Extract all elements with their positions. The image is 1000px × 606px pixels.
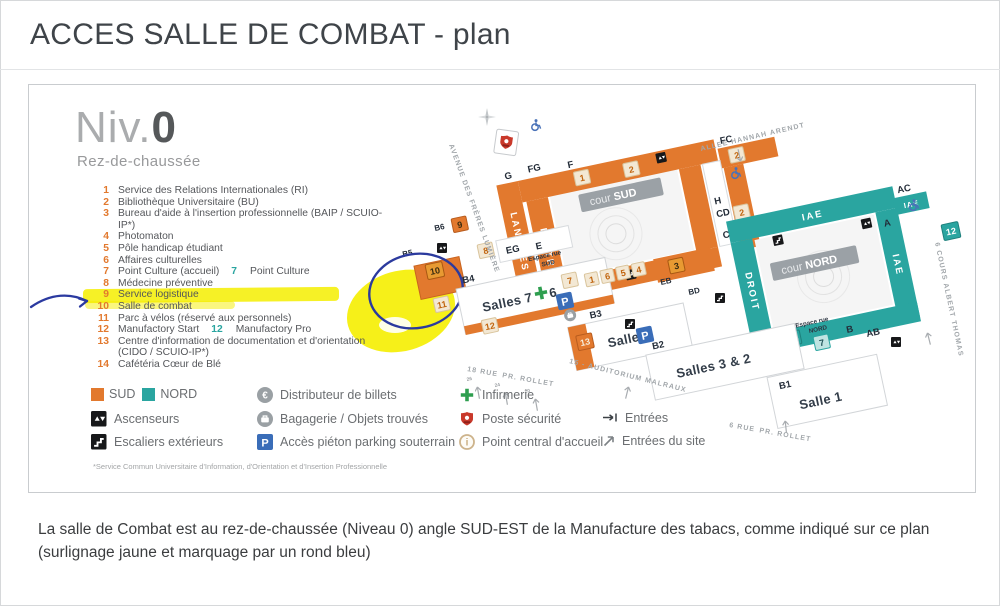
nord-label: NORD [160,387,197,401]
compass-icon [478,108,496,126]
site-entrance-arrow-icon [603,435,615,447]
legend-label: Escaliers extérieurs [114,435,223,449]
legend-ascenseurs: Ascenseurs [91,411,179,427]
parking-icon [257,434,273,450]
parking-icon [636,326,655,345]
directory-row: 5Pôle handicap étudiant [91,243,391,255]
stairs-icon [91,434,107,450]
elevator-icon [91,411,107,427]
parking-icon [556,292,575,311]
zone-bd: BD [688,286,701,297]
legend-label: Accès piéton parking souterrain [280,435,455,449]
directory-row: 9Service logistique [91,289,391,301]
directory-row-salle-de-combat: 10Salle de combat [91,301,391,313]
zone-ac: AC [896,183,912,197]
legend-entrees-site: Entrées du site [603,434,705,448]
legend-label: Bagagerie / Objets trouvés [280,412,428,426]
legend-label: Infirmerie [482,388,534,402]
directory-row: 12Manufactory Start12Manufactory Pro [91,324,391,336]
legend-label: Point central d'accueil [482,435,603,449]
legend-distributeur: Distributeur de billets [257,387,397,403]
legend-label: Distributeur de billets [280,388,397,402]
infirmary-cross-icon [459,387,475,403]
caption-text: La salle de Combat est au rez-de-chaussé… [38,518,978,565]
blue-pen-arrow [28,285,105,321]
page-title: ACCES SALLE DE COMBAT - plan [30,18,511,52]
entry-arrow [925,332,934,345]
legend-sud-nord: SUD NORD [91,387,197,401]
directory-row: 4Photomaton [91,231,391,243]
elevator-icon [861,218,873,230]
map-marker-11: 11 [436,299,447,311]
legend-label: Entrées du site [622,434,705,448]
legend-escaliers: Escaliers extérieurs [91,434,223,450]
map-marker-13: 13 [579,336,591,348]
info-icon [459,434,475,450]
legend-parking: Accès piéton parking souterrain [257,434,455,450]
security-shield-icon [459,411,475,427]
zone-b3: B3 [589,308,603,321]
zone-b6: B6 [434,222,446,233]
entry-number: 26 [466,376,473,383]
map-marker-12-nord: 12 [945,226,957,238]
zone-eb: EB [660,276,673,287]
directory-row: 3Bureau d'aide à l'insertion professionn… [91,208,391,231]
zone-b4: B4 [461,273,476,286]
zone-fg: FG [527,162,542,176]
directory-row: 13Centre d'information de documentation … [91,336,391,348]
legend-entrees: Entrées [603,411,668,425]
map-marker-10-salle-de-combat: 10 [429,265,441,277]
map-marker-12: 12 [484,320,496,332]
scuio-footnote: *Service Commun Universitaire d'Informat… [93,462,387,471]
zone-f: F [567,159,575,171]
directory-list: 1Service des Relations Internationales (… [91,185,391,371]
street-avenue-freres-lumiere: AVENUE DES FRÈRES LUMIÈRE [447,143,502,274]
legend-infirmerie: Infirmerie [459,387,534,403]
legend-bagagerie: Bagagerie / Objets trouvés [257,411,428,427]
zone-g: G [504,170,514,182]
street-cours-albert-thomas: 6 COURS ALBERT THOMAS [933,242,964,357]
nord-color-swatch [142,388,155,401]
nord-building-complex: IAE DROIT IAE cour NORD CD C AC IAE A 14 [715,166,952,358]
elevator-icon [437,243,447,253]
infirmary-cross-icon [532,284,551,303]
directory-row: 7Point Culture (accueil)7Point Culture [91,266,391,278]
stairs-icon [715,293,725,303]
directory-row: 14Cafétéria Cœur de Blé [91,359,391,371]
directory-row-sub: (CIDO / SCUIO-IP*) [118,347,391,359]
legend-label: Ascenseurs [114,412,179,426]
entrance-arrow-icon [603,413,618,423]
zone-ab: AB [865,326,881,340]
sud-color-swatch [91,388,104,401]
legend-label: Poste sécurité [482,412,561,426]
directory-row: 1Service des Relations Internationales (… [91,185,391,197]
security-post-cube [494,129,519,156]
directory-row: 2Bibliothèque Universitaire (BU) [91,197,391,209]
euro-icon [257,387,273,403]
elevator-icon [655,152,667,164]
street-18-rue-rollet: 18 RUE PR. ROLLET [466,358,556,390]
elevator-icon [891,337,901,347]
entry-arrow [623,386,632,399]
stairs-icon [772,234,784,246]
directory-row: 8Médecine préventive [91,278,391,290]
legend-securite: Poste sécurité [459,411,561,427]
legend-accueil: Point central d'accueil [459,434,603,450]
directory-row: 6Affaires culturelles [91,255,391,267]
directory-row: 11Parc à vélos (réservé aux personnels) [91,313,391,325]
legend-label: Entrées [625,411,668,425]
wheelchair-icon [532,119,541,130]
bag-icon [257,411,273,427]
stairs-icon [625,319,635,329]
floor-plan-panel: Niv.0 Rez-de-chaussée 1Service des Relat… [28,84,976,493]
title-divider [0,69,1000,70]
sud-label: SUD [109,387,135,401]
